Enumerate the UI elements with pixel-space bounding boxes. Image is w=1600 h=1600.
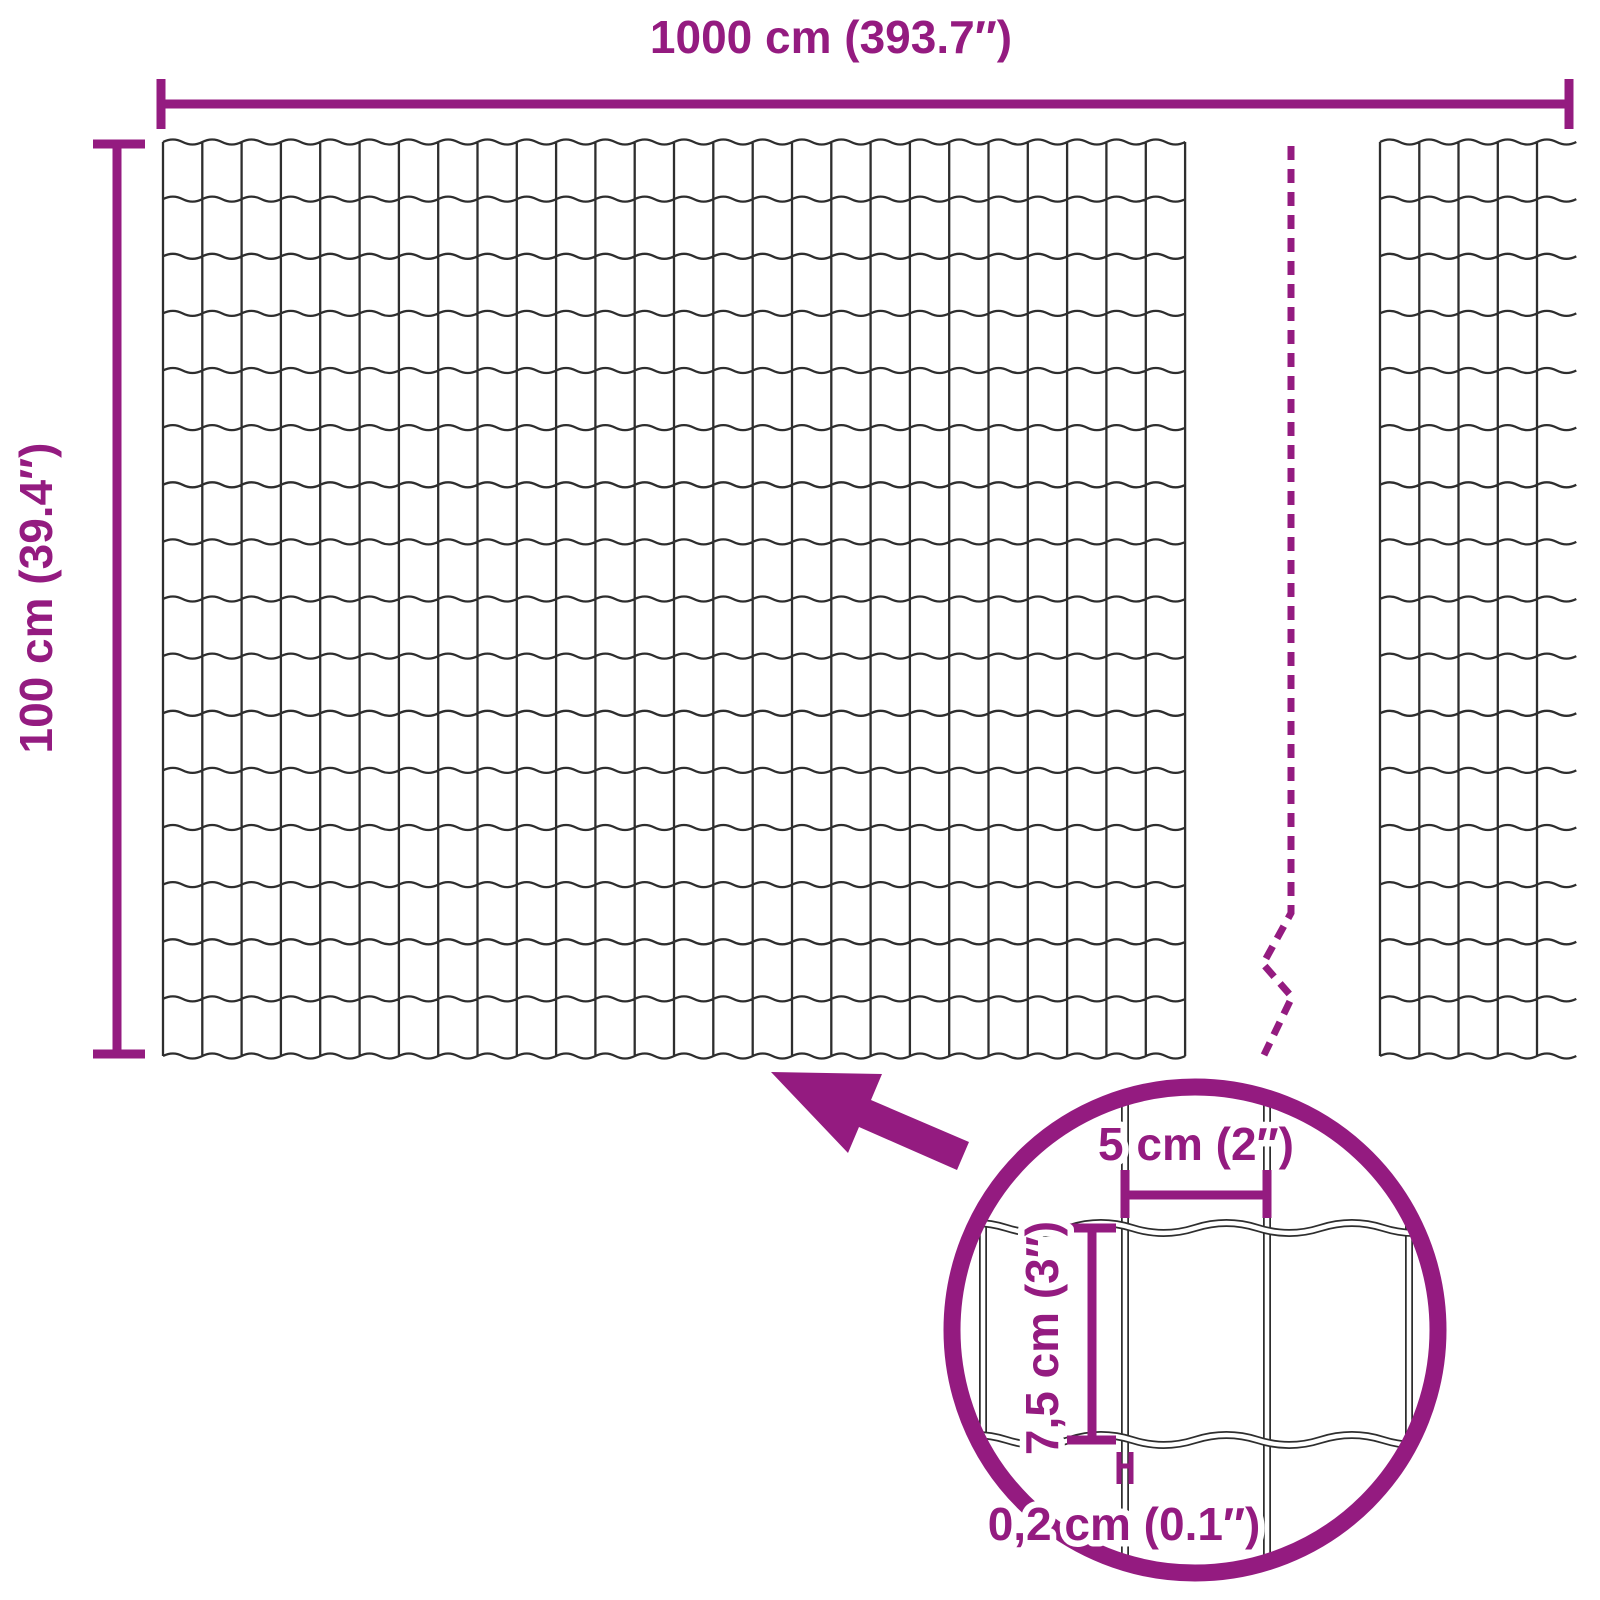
width-dimension-label: 1000 cm (393.7″) bbox=[650, 11, 1012, 63]
magnifier-circle: 5 cm (2″) 7,5 cm (3″) 0,2 cm (0.1″) bbox=[944, 1078, 1446, 1582]
cell-width-dimension-label: 5 cm (2″) bbox=[1098, 1118, 1294, 1170]
height-dimension: 100 cm (39.4″) bbox=[10, 144, 145, 1054]
mesh-panel-main bbox=[163, 140, 1185, 1059]
cell-height-dimension-label: 7,5 cm (3″) bbox=[1016, 1221, 1068, 1455]
width-dimension-line bbox=[161, 79, 1569, 129]
mesh-panel-continuation bbox=[1380, 140, 1576, 1059]
mesh-main-wires bbox=[163, 140, 1185, 1059]
fence-dimension-diagram: 1000 cm (393.7″) 100 cm (39.4″) bbox=[0, 0, 1600, 1600]
zoom-arrow-icon bbox=[771, 1072, 969, 1170]
height-dimension-label: 100 cm (39.4″) bbox=[10, 443, 62, 754]
diagram-canvas: 1000 cm (393.7″) 100 cm (39.4″) bbox=[0, 0, 1600, 1600]
mesh-right-wires bbox=[1380, 140, 1576, 1059]
height-dimension-line bbox=[93, 144, 145, 1054]
break-indicator-line bbox=[1263, 146, 1292, 1055]
wire-thickness-label: 0,2 cm (0.1″) bbox=[988, 1498, 1261, 1550]
width-dimension: 1000 cm (393.7″) bbox=[161, 11, 1569, 129]
